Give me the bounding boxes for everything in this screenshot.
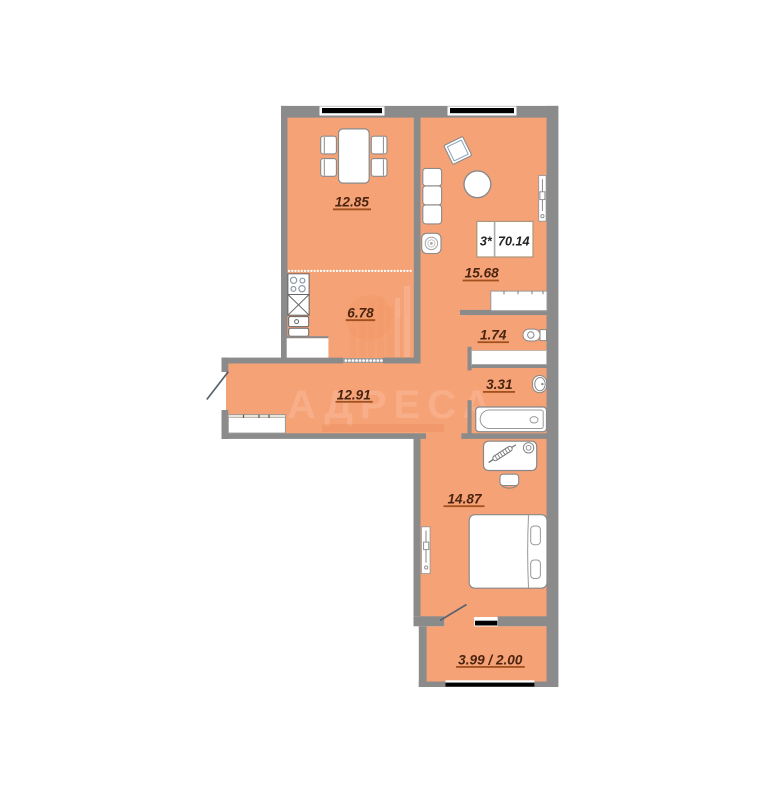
svg-text:12.91: 12.91 (337, 387, 371, 402)
svg-text:12.85: 12.85 (335, 195, 369, 210)
svg-text:АДРЕСА: АДРЕСА (287, 383, 498, 427)
svg-text:3.99 / 2.00: 3.99 / 2.00 (458, 653, 523, 668)
svg-text:3.31: 3.31 (486, 377, 512, 392)
svg-text:15.68: 15.68 (465, 266, 499, 281)
svg-text:3*: 3* (480, 234, 493, 248)
svg-text:70.14: 70.14 (498, 234, 530, 248)
svg-text:14.87: 14.87 (447, 492, 482, 507)
svg-text:1.74: 1.74 (480, 328, 507, 343)
svg-text:6.78: 6.78 (347, 305, 374, 320)
